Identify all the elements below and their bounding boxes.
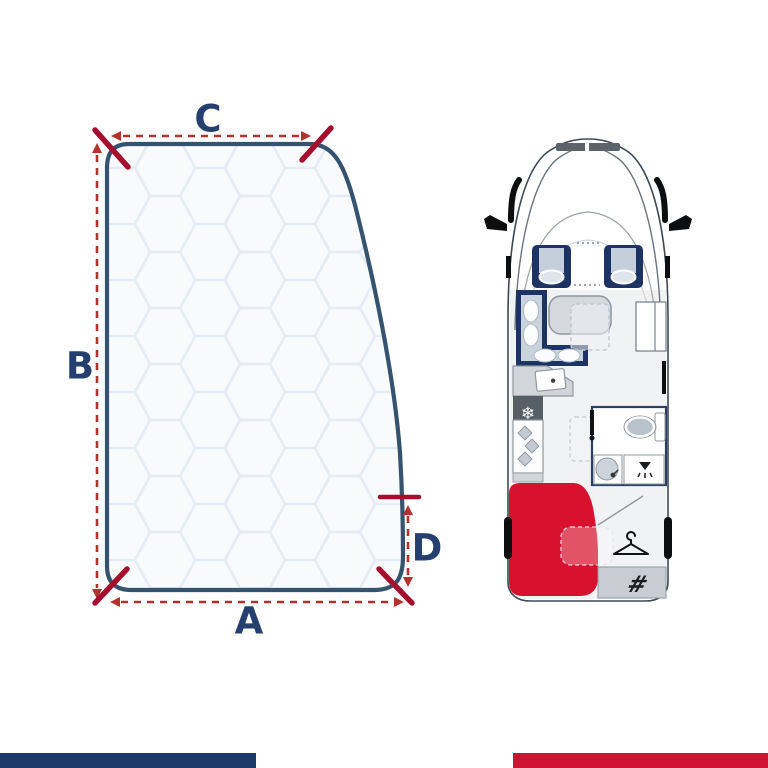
dropdown-bed-outline bbox=[571, 304, 609, 350]
bathroom bbox=[590, 407, 667, 485]
bathroom-sink-icon bbox=[594, 455, 622, 484]
mirror-right-icon bbox=[669, 215, 692, 231]
label-c: C bbox=[194, 101, 221, 138]
footer-bar-red bbox=[513, 753, 768, 768]
mattress-outline bbox=[107, 144, 403, 590]
kitchen-sink-icon bbox=[535, 368, 566, 391]
wheel-right bbox=[664, 517, 672, 559]
infographic-canvas: ❄ bbox=[0, 0, 768, 768]
label-b: B bbox=[66, 348, 94, 385]
label-d: D bbox=[412, 530, 443, 567]
bed-pillow-overlay bbox=[561, 527, 613, 565]
kitchen-counter bbox=[513, 366, 573, 396]
stove bbox=[513, 420, 543, 482]
cabinet-right bbox=[636, 302, 666, 351]
wheel-left bbox=[504, 517, 512, 559]
motorhome-floorplan: ❄ bbox=[484, 139, 692, 601]
footer-bar-navy bbox=[0, 753, 256, 768]
shower-icon bbox=[624, 455, 664, 484]
cab-seat-right bbox=[604, 245, 643, 288]
mattress-diagram bbox=[92, 128, 419, 607]
vector-art: ❄ bbox=[0, 0, 768, 768]
mirror-left-icon bbox=[484, 215, 507, 231]
roof-vent-divider bbox=[585, 143, 589, 151]
rear-garage: # bbox=[598, 567, 666, 598]
label-a: A bbox=[235, 603, 264, 640]
cab-seat-left bbox=[532, 245, 571, 288]
